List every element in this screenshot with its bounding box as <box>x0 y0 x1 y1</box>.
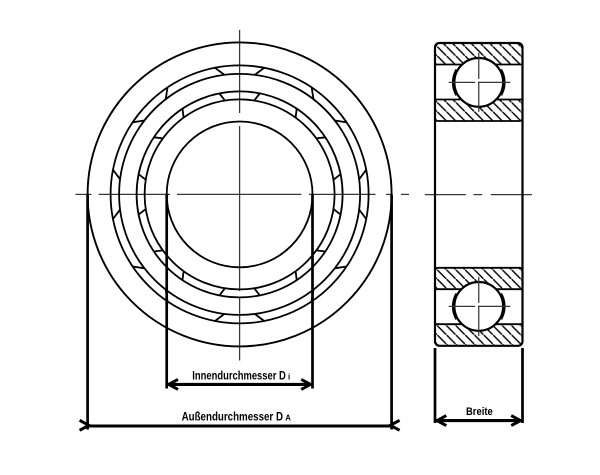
svg-text:i: i <box>288 373 290 382</box>
svg-text:Breite: Breite <box>466 406 493 418</box>
svg-text:A: A <box>285 413 291 422</box>
svg-text:Außendurchmesser D: Außendurchmesser D <box>182 410 283 423</box>
svg-text:Innendurchmesser D: Innendurchmesser D <box>192 370 285 383</box>
